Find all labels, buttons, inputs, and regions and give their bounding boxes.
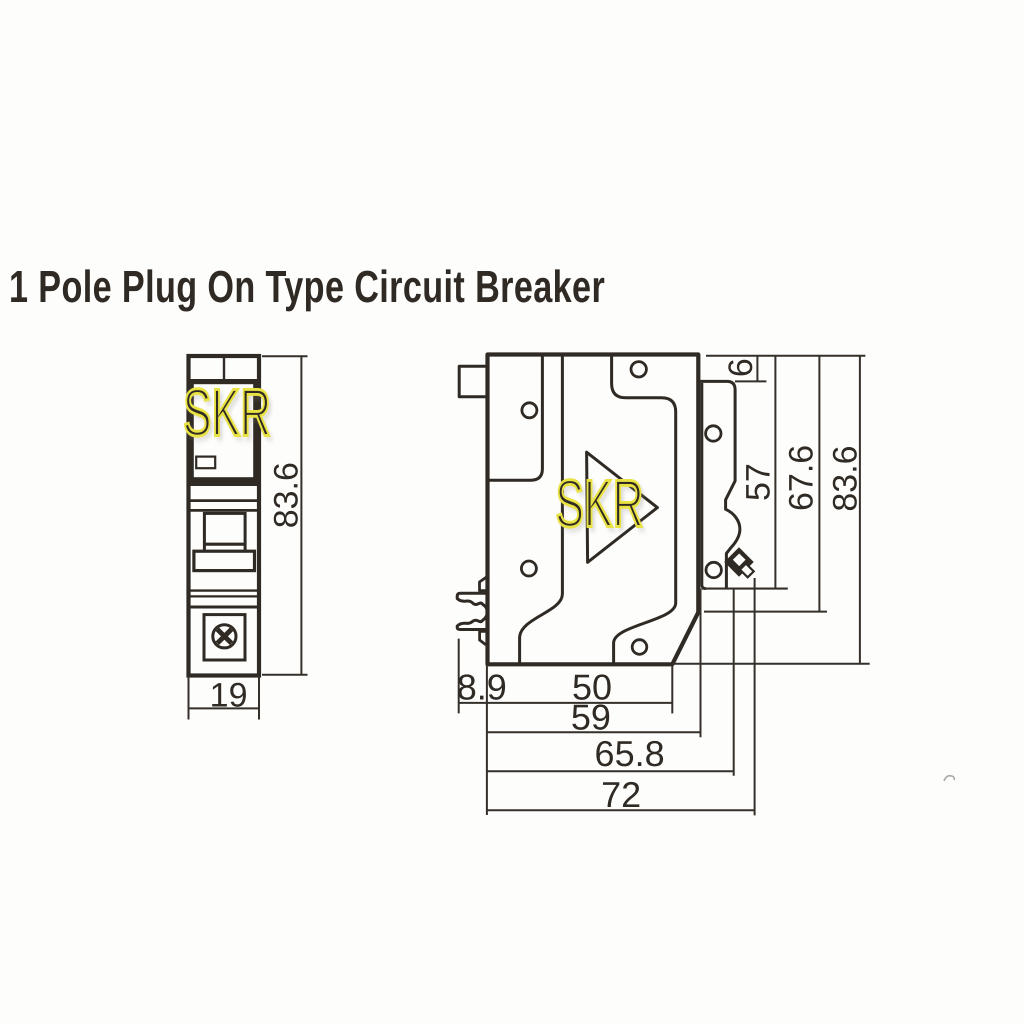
svg-text:1 Pole Plug On Type Circuit Br: 1 Pole Plug On Type Circuit Breaker [9,261,605,312]
svg-text:83.6: 83.6 [267,462,305,528]
svg-text:8.9: 8.9 [457,666,507,707]
svg-text:83.6: 83.6 [826,445,864,511]
svg-text:SKR: SKR [183,376,271,451]
svg-text:6: 6 [722,358,760,377]
svg-text:72: 72 [601,774,641,815]
svg-text:67.6: 67.6 [782,445,820,511]
svg-text:SKR: SKR [555,467,643,542]
svg-text:19: 19 [210,677,248,715]
svg-text:59: 59 [571,697,611,738]
svg-text:57: 57 [740,463,778,501]
svg-text:65.8: 65.8 [595,733,665,774]
